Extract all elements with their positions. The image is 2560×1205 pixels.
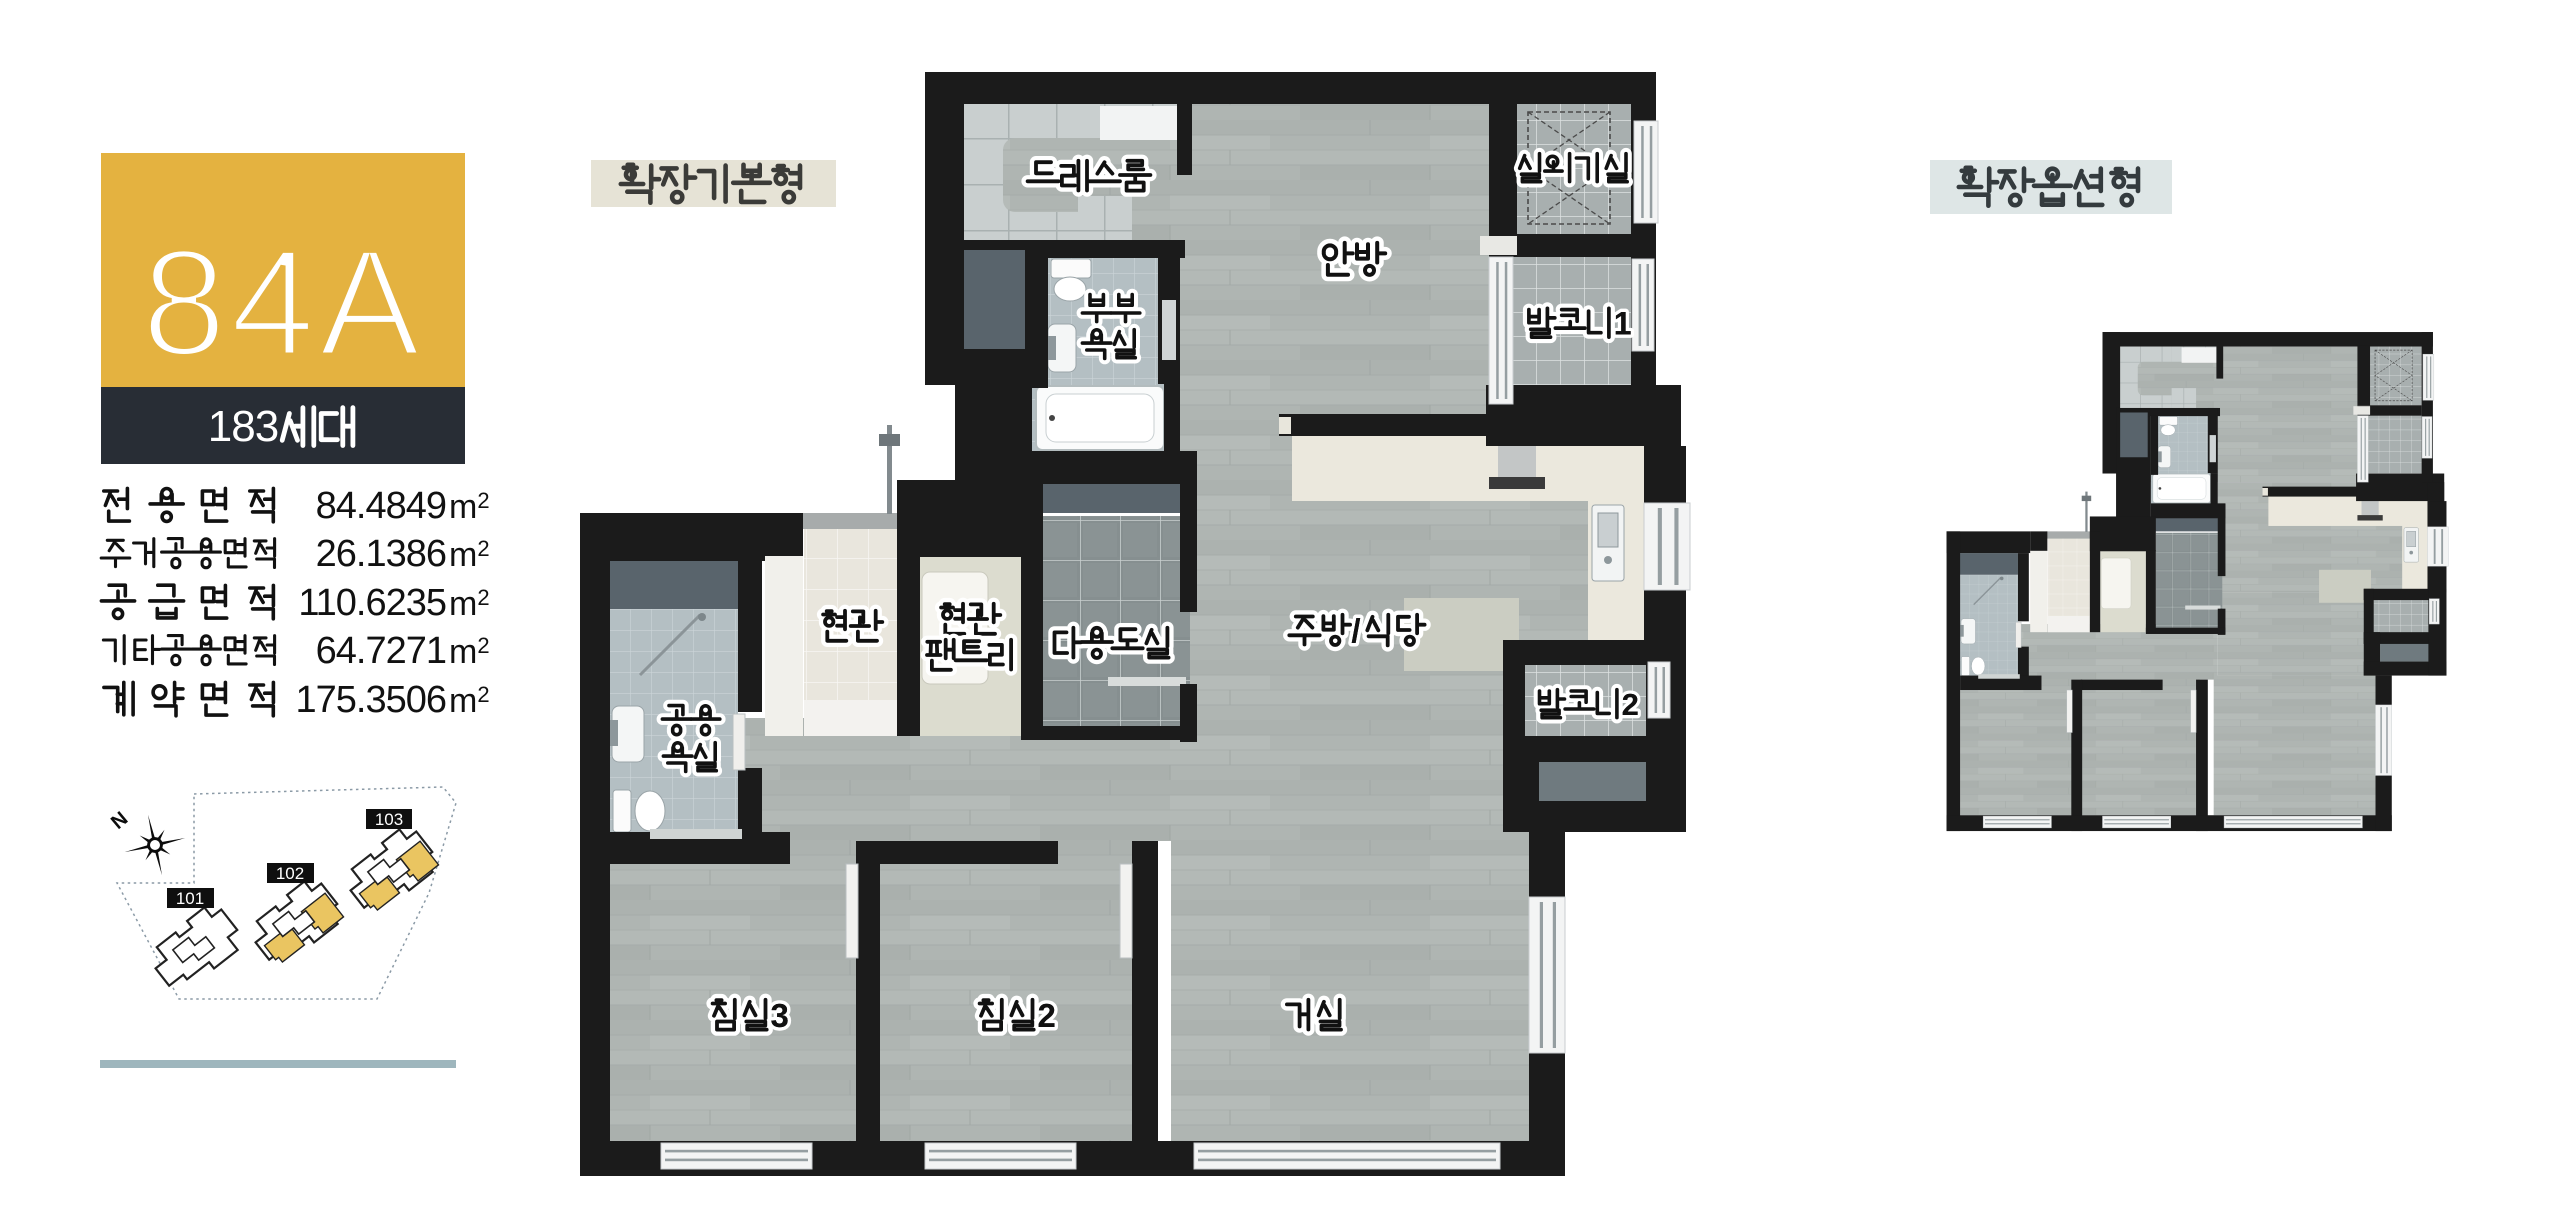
svg-text:1: 1 xyxy=(1614,306,1632,342)
svg-text:2: 2 xyxy=(1038,997,1056,1034)
svg-text:84A: 84A xyxy=(142,218,424,388)
svg-text:101: 101 xyxy=(176,889,204,908)
svg-text:103: 103 xyxy=(375,810,403,829)
svg-text:102: 102 xyxy=(276,864,304,883)
svg-text:84.4849: 84.4849 xyxy=(316,485,446,527)
svg-text:64.7271: 64.7271 xyxy=(316,630,446,672)
svg-text:3: 3 xyxy=(771,997,789,1034)
svg-text:2: 2 xyxy=(1622,687,1639,722)
svg-text:110.6235: 110.6235 xyxy=(298,582,446,624)
svg-text:175.3506: 175.3506 xyxy=(296,679,447,721)
svg-text:26.1386: 26.1386 xyxy=(316,533,446,575)
svg-text:183: 183 xyxy=(208,402,278,451)
svg-text:/: / xyxy=(1351,612,1360,649)
